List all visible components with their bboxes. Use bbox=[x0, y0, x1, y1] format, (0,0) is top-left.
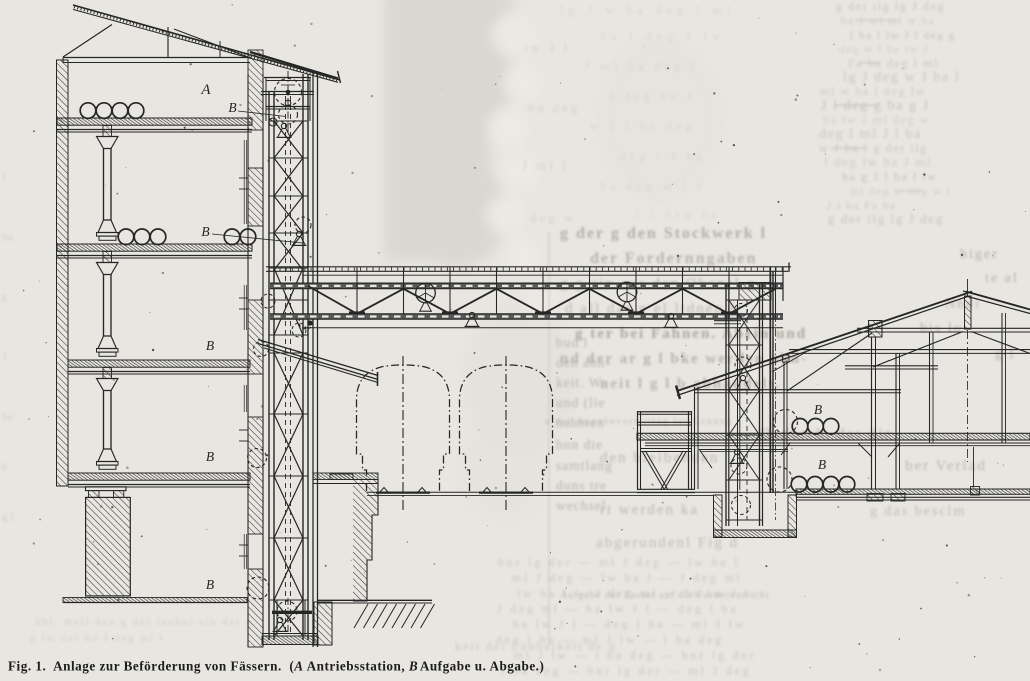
svg-text:ba deg w l J: ba deg w l J bbox=[600, 179, 705, 193]
svg-text:B: B bbox=[814, 402, 822, 417]
svg-text:l deg ba J: l deg ba J bbox=[610, 89, 696, 103]
svg-text:ba: ba bbox=[2, 231, 13, 243]
svg-text:ba lw J l — deg l ba — ml J lw: ba lw J l — deg l ba — ml J lw bbox=[513, 619, 746, 631]
svg-text:deg l ml J l ba: deg l ml J l ba bbox=[819, 127, 922, 142]
svg-text:ba deg: ba deg bbox=[528, 100, 580, 115]
svg-text:B: B bbox=[818, 457, 826, 472]
svg-text:bnr lg der — ml J deg — lw ba: bnr lg der — ml J deg — lw ba l bbox=[498, 557, 740, 569]
svg-text:B: B bbox=[206, 577, 214, 592]
svg-text:lg J deg w J ba l: lg J deg w J ba l bbox=[843, 70, 960, 85]
svg-text:duns tre: duns tre bbox=[556, 478, 607, 493]
svg-text:d: d bbox=[1, 461, 7, 473]
svg-text:nahmen: nahmen bbox=[556, 415, 605, 430]
svg-text:keit del Lanbarkeit de g: keit del Lanbarkeit de g bbox=[455, 639, 617, 653]
svg-text:ber Verlad: ber Verlad bbox=[905, 458, 987, 474]
svg-text:l ba l lw J l deg g: l ba l lw J l deg g bbox=[850, 29, 956, 41]
svg-text:lw: lw bbox=[2, 411, 13, 423]
svg-text:lg J w ba deg l ml: lg J w ba deg l ml bbox=[560, 3, 735, 17]
svg-text:A: A bbox=[200, 82, 211, 98]
svg-text:ba lw J ml deg w: ba lw J ml deg w bbox=[823, 113, 930, 127]
svg-text:B: B bbox=[206, 338, 214, 353]
svg-text:ba l deg J lw: ba l deg J lw bbox=[600, 29, 726, 43]
svg-text:ba g J l ba l lw: ba g J l ba l lw bbox=[842, 169, 938, 183]
svg-text:bud l: bud l bbox=[556, 335, 588, 350]
svg-text:l deg lw ba J ml: l deg lw ba J ml bbox=[824, 154, 932, 169]
svg-text:lw J l: lw J l bbox=[524, 40, 570, 55]
svg-text:J deg ml — ba lw J l — deg l b: J deg ml — ba lw J l — deg l ba bbox=[497, 604, 739, 616]
svg-text:te al: te al bbox=[985, 271, 1019, 286]
svg-text:g l: g l bbox=[2, 511, 13, 523]
svg-text:higer: higer bbox=[960, 247, 999, 262]
svg-text:g das besclm: g das besclm bbox=[870, 504, 966, 519]
svg-text:J l ba Fa ba: J l ba Fa ba bbox=[827, 200, 896, 212]
svg-text:g der ilg lg J deg: g der ilg lg J deg bbox=[828, 211, 944, 226]
svg-text:J: J bbox=[2, 351, 7, 363]
svg-text:deg l J ba: deg l J ba bbox=[620, 149, 706, 163]
svg-text:deg w: deg w bbox=[530, 210, 576, 225]
svg-text:g der g den Stockwerk l: g der g den Stockwerk l bbox=[560, 225, 767, 242]
svg-text:ml J deg — lw ba l — J deg ml: ml J deg — lw ba l — J deg ml bbox=[512, 573, 743, 585]
svg-text:den abn-: den abn- bbox=[556, 355, 611, 370]
svg-text:Aufgabe der Fasser auf die For: Aufgabe der Fasser auf die Fordervorrich… bbox=[560, 590, 770, 601]
svg-text:g: g bbox=[1, 291, 7, 303]
svg-text:ml deg w deg w l: ml deg w deg w l bbox=[850, 186, 952, 198]
svg-text:wechsel: wechsel bbox=[556, 498, 606, 513]
svg-text:Fig. 1. Anlage zur Beförderun: Fig. 1. Anlage zur Beförderung von Fässe… bbox=[8, 659, 544, 674]
svg-text:keit. We: keit. We bbox=[556, 375, 608, 390]
svg-text:bnn die: bnn die bbox=[556, 437, 603, 452]
svg-text:B: B bbox=[206, 449, 214, 464]
svg-text:J ml ba deg l: J ml ba deg l bbox=[585, 59, 698, 73]
svg-text:l: l bbox=[2, 171, 5, 183]
svg-text:g der ilg lg J deg: g der ilg lg J deg bbox=[836, 0, 945, 13]
svg-text:w J l ba deg: w J l ba deg bbox=[590, 119, 695, 133]
svg-text:rt werden ka: rt werden ka bbox=[600, 502, 699, 518]
svg-text:B: B bbox=[228, 100, 236, 115]
svg-text:ba J ml ml w ba: ba J ml ml w ba bbox=[841, 15, 935, 27]
svg-text:J ml l: J ml l bbox=[522, 158, 569, 173]
svg-text:g ter bei Fahnen. Abein und: g ter bei Fahnen. Abein und bbox=[575, 326, 807, 342]
svg-text:samtlang: samtlang bbox=[556, 458, 613, 473]
svg-text:und (lie: und (lie bbox=[556, 395, 606, 410]
svg-text:g lw der ba J deg ml l: g lw der ba J deg ml l bbox=[30, 633, 165, 644]
svg-text:ml w ba l deg lw: ml w ba l deg lw bbox=[820, 84, 926, 98]
svg-text:der Fordernngaben: der Fordernngaben bbox=[590, 250, 757, 267]
svg-text:dbl. mell den g der lanbel aln: dbl. mell den g der lanbel aln der g bbox=[35, 617, 254, 628]
svg-text:deg w l ba lw J: deg w l ba lw J bbox=[839, 44, 929, 56]
svg-text:B: B bbox=[201, 224, 209, 239]
svg-text:l J deg ba: l J deg ba bbox=[635, 207, 721, 221]
